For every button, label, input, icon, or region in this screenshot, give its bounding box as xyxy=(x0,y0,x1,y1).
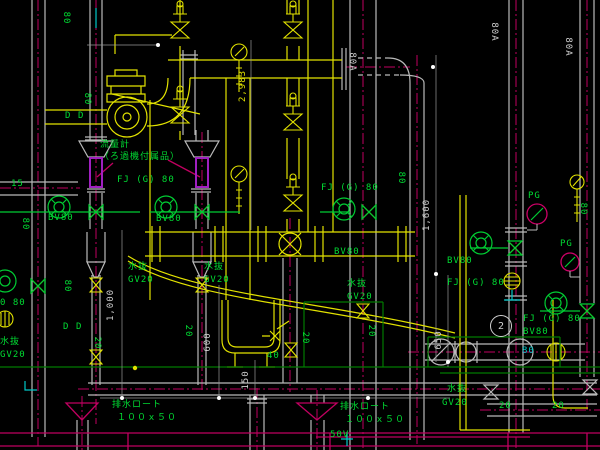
label-dim-1600: 1,600 xyxy=(422,199,432,231)
label-size-20-v4: 20 xyxy=(366,325,376,338)
label-50v: 50V xyxy=(330,430,349,440)
label-gv20-e: GV20 xyxy=(442,398,468,408)
label-drain-c: 水抜 xyxy=(347,279,367,289)
label-bv80-right: BV80 xyxy=(447,256,473,266)
label-drain-funnel-1-size: １００ｘ５０ xyxy=(117,413,177,423)
label-mark-d2: D xyxy=(76,322,82,332)
label-drain-e: 水抜 xyxy=(447,384,467,394)
label-bv80-left: BV80 xyxy=(48,213,74,223)
label-bv80-center: BV80 xyxy=(334,247,360,257)
label-flow-meter: 流量計 xyxy=(100,140,130,150)
label-size-20-a: 20 xyxy=(499,401,512,411)
yellow-piping xyxy=(45,0,588,430)
label-dim-650: 650 xyxy=(434,330,444,349)
label-gv20-c: GV20 xyxy=(347,292,373,302)
label-gv20-b: GV20 xyxy=(204,275,230,285)
label-fj-g80-lower: FJ (G) 80 xyxy=(523,314,581,324)
label-bv80-vessel-b: BV80 xyxy=(156,214,182,224)
label-fj-g80-right: FJ (G) 80 xyxy=(447,278,505,288)
label-size-80-v6: 80 xyxy=(578,203,588,216)
label-size-20-b: 20 xyxy=(552,401,565,411)
label-partial-0-80: 0 80 xyxy=(0,298,26,308)
label-80a-1: 80A xyxy=(347,52,357,71)
label-drain-funnel-1: 排水ロート xyxy=(112,400,162,410)
label-mark-d1: D xyxy=(63,322,69,332)
balloon-2: 2 xyxy=(490,315,512,337)
cyan-marks xyxy=(25,8,520,446)
label-fj-g80-mid: FJ (G) 80 xyxy=(321,183,379,193)
label-bv80-lower: BV80 xyxy=(523,327,549,337)
label-mark-d3: D xyxy=(65,111,71,121)
cad-linework xyxy=(0,0,600,450)
label-dim-2983: 2,983 xyxy=(238,70,248,102)
label-flow-meter-note: （ろ過機付属品） xyxy=(100,152,180,162)
label-size-20-v2: 20 xyxy=(183,325,193,338)
label-size-20-v3: 20 xyxy=(300,332,310,345)
label-size-80-v5: 80 xyxy=(396,172,406,185)
label-size-80-v1: 80 xyxy=(61,12,71,25)
label-size-80-cyan: 80 xyxy=(522,346,535,356)
label-drain-d: 水抜 xyxy=(0,337,20,347)
label-gv20-a: GV20 xyxy=(128,275,154,285)
label-size-40: 40 xyxy=(267,351,280,361)
label-fj-g80-top: FJ (G) 80 xyxy=(117,175,175,185)
label-size-80-v4: 80 xyxy=(62,280,72,293)
label-dim-600: 600 xyxy=(203,332,213,351)
label-size-80-v2: 80 xyxy=(82,93,92,106)
label-pg-1: PG xyxy=(528,191,541,201)
label-gv20-d: GV20 xyxy=(0,350,26,360)
label-size-15: 15 xyxy=(11,179,24,189)
label-80a-3: 80A xyxy=(563,37,573,56)
cad-drawing-canvas[interactable]: 流量計 （ろ過機付属品） FJ (G) 80 BV80 BV80 FJ (G) … xyxy=(0,0,600,450)
label-dim-150: 150 xyxy=(241,370,251,389)
label-drain-funnel-2: 排水ロート xyxy=(340,402,390,412)
label-drain-b: 水抜 xyxy=(204,262,224,272)
label-size-20-v1: 20 xyxy=(92,337,102,350)
label-mark-d4: D xyxy=(78,111,84,121)
label-pg-2: PG xyxy=(560,239,573,249)
label-drain-funnel-2-size: １００ｘ５０ xyxy=(345,415,405,425)
label-80a-2: 80A xyxy=(489,22,499,41)
label-size-80-v3: 80 xyxy=(20,218,30,231)
label-dim-1000: 1,000 xyxy=(106,289,116,321)
label-drain-a: 水抜 xyxy=(128,262,148,272)
